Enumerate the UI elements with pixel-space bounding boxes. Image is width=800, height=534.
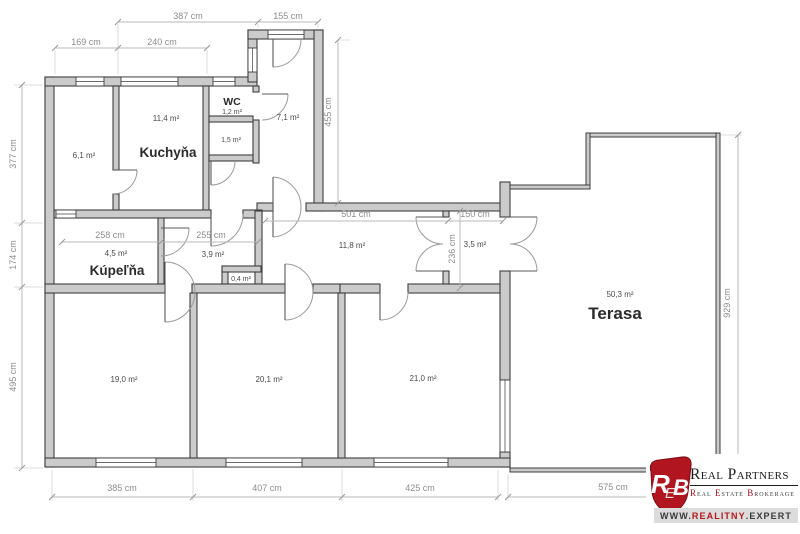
room-area-3-9: 3,9 m² <box>202 250 225 259</box>
dim-label-174: 174 cm <box>8 240 18 270</box>
dim-label-258: 258 cm <box>95 230 125 240</box>
dim-label-425: 425 cm <box>405 483 435 493</box>
room-area-19-0: 19,0 m² <box>110 375 137 384</box>
dim-label-495: 495 cm <box>8 362 18 392</box>
brand-title: Real Partners <box>690 466 798 484</box>
room-area-0-4: 0,4 m² <box>231 276 252 283</box>
brand-logo: R E B Real Partners Real Estate Brokerag… <box>646 454 798 530</box>
terrace-outline <box>510 133 720 472</box>
dim-label-240: 240 cm <box>147 37 177 47</box>
dim-label-236: 236 cm <box>447 234 457 264</box>
room-area-wc: 1,2 m² <box>222 109 243 116</box>
dim-label-501: 501 cm <box>341 209 371 219</box>
website-domain: realitny <box>692 511 746 521</box>
subtitle-word-brokerage: rokerage <box>754 488 795 498</box>
room-name-wc: WC <box>223 96 241 108</box>
brand-website-bar: www.realitny.expert <box>654 508 798 523</box>
dim-label-255: 255 cm <box>196 230 226 240</box>
room-area-7-1: 7,1 m² <box>277 113 300 122</box>
room-name-kupelna: Kúpeľňa <box>90 263 145 278</box>
room-name-terasa: Terasa <box>588 304 642 323</box>
website-tld: .expert <box>746 511 792 521</box>
room-area-21-0: 21,0 m² <box>409 374 436 383</box>
room-area-kupelna: 4,5 m² <box>105 249 128 258</box>
dim-label-155: 155 cm <box>273 11 303 21</box>
dimension-lines-layer <box>19 19 741 500</box>
dim-label-407: 407 cm <box>252 483 282 493</box>
room-area-kuchyna: 11,4 m² <box>153 114 180 123</box>
floorplan-page: 387 cm 155 cm 169 cm 240 cm 377 cm 174 c… <box>0 0 800 534</box>
subtitle-word-estate: state <box>721 488 744 498</box>
dim-label-169: 169 cm <box>71 37 101 47</box>
dim-label-150: 150 cm <box>460 209 490 219</box>
brand-rule <box>690 485 798 486</box>
room-area-1-5: 1,5 m² <box>221 137 242 144</box>
subtitle-initial-r: R <box>690 488 697 498</box>
website-pre: www. <box>660 511 692 521</box>
dim-label-385: 385 cm <box>107 483 137 493</box>
dim-label-377: 377 cm <box>8 139 18 169</box>
room-area-20-1: 20,1 m² <box>255 375 282 384</box>
brand-subtitle: Real Estate Brokerage <box>690 488 798 498</box>
room-area-6-1: 6,1 m² <box>73 151 96 160</box>
dim-label-575: 575 cm <box>598 482 628 492</box>
subtitle-word-real: eal <box>697 488 712 498</box>
dim-label-455: 455 cm <box>323 97 333 127</box>
room-area-11-8: 11,8 m² <box>339 241 366 250</box>
room-name-kuchyna: Kuchyňa <box>139 145 197 160</box>
room-area-3-5: 3,5 m² <box>464 240 487 249</box>
dim-label-387: 387 cm <box>173 11 203 21</box>
monogram-b: B <box>673 475 689 500</box>
dim-label-929: 929 cm <box>722 288 732 318</box>
brand-shield-icon: R E B <box>644 456 694 516</box>
room-area-terasa: 50,3 m² <box>606 290 633 299</box>
